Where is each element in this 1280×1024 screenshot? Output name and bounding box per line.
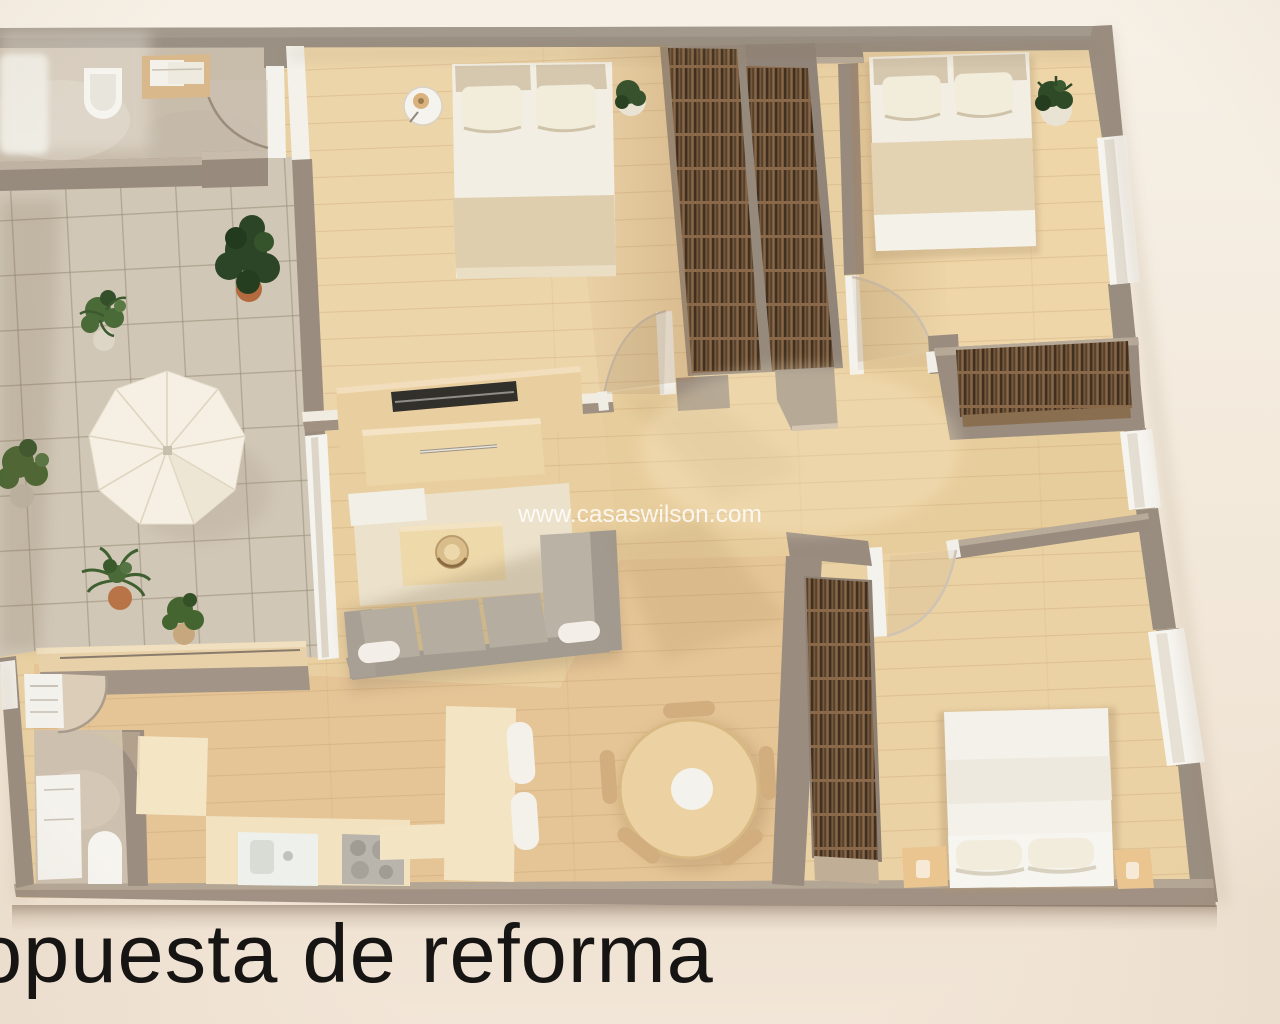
svg-text:www.casaswilson.com: www.casaswilson.com — [517, 501, 762, 528]
svg-text:opuesta de reforma: opuesta de reforma — [0, 907, 714, 1000]
